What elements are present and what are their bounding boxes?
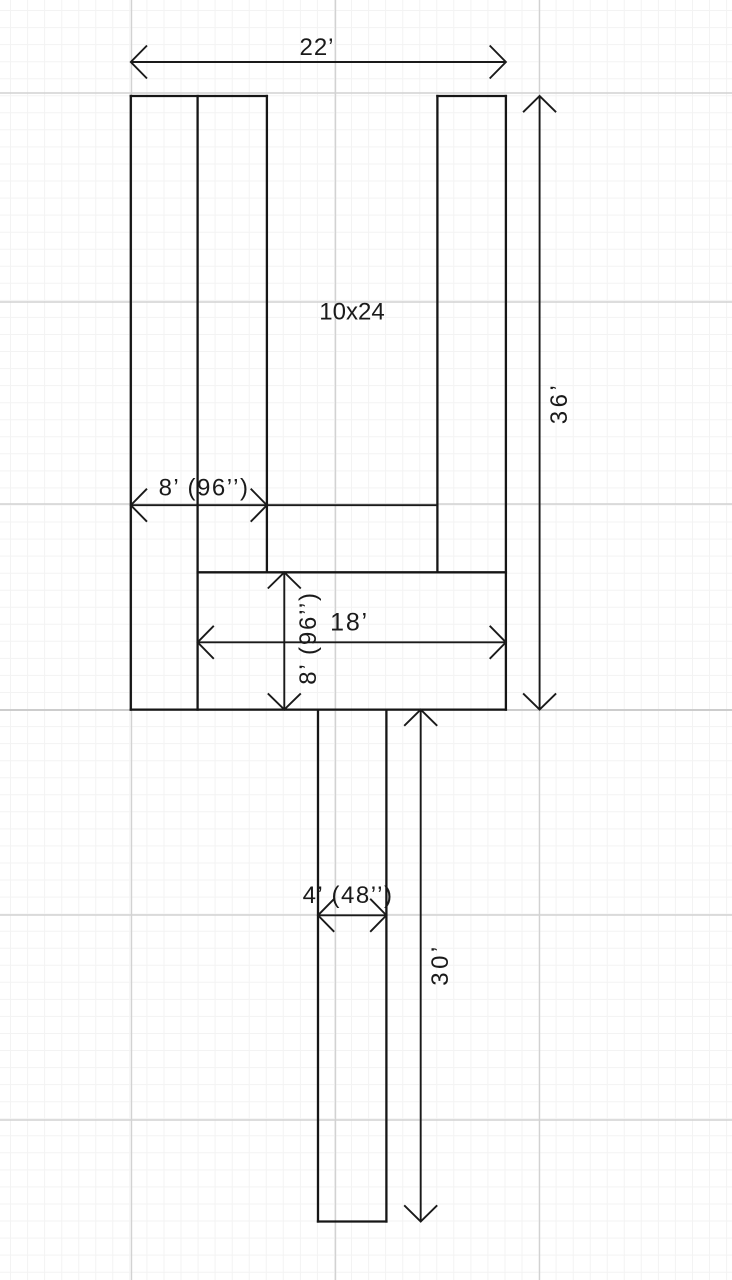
svg-text:8’ (96’’): 8’ (96’’): [159, 475, 250, 502]
svg-text:30’: 30’: [427, 943, 454, 986]
svg-text:22’: 22’: [299, 34, 334, 61]
svg-text:18’: 18’: [330, 609, 369, 637]
svg-text:8’ (96’’): 8’ (96’’): [295, 591, 322, 685]
svg-text:4’ (48’’): 4’ (48’’): [303, 882, 394, 909]
svg-text:36’: 36’: [546, 382, 573, 425]
svg-text:10x24: 10x24: [319, 299, 384, 326]
